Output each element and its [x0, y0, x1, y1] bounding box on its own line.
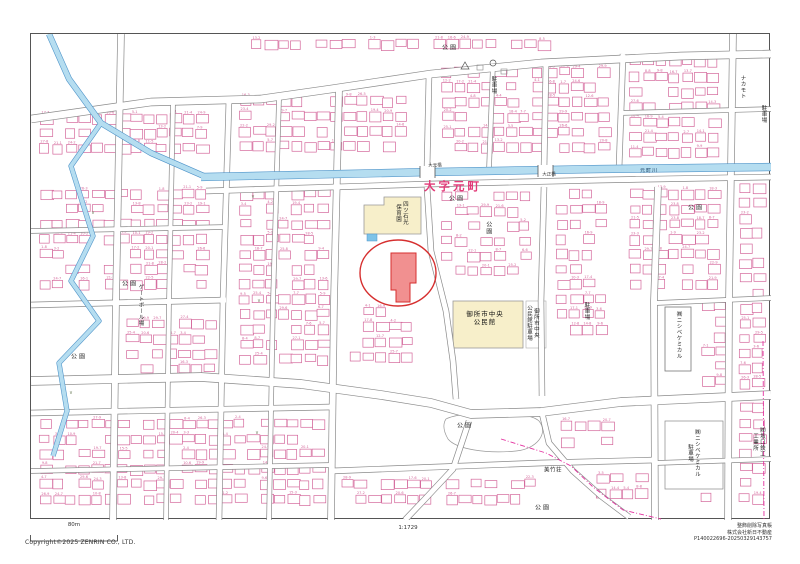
- svg-text:21-1: 21-1: [54, 141, 62, 145]
- svg-text:10-3: 10-3: [571, 276, 579, 280]
- svg-text:6-7: 6-7: [318, 305, 324, 309]
- svg-text:16-7: 16-7: [670, 70, 678, 74]
- svg-text:29-6: 29-6: [80, 475, 88, 479]
- svg-text:13-2: 13-2: [158, 124, 166, 128]
- svg-text:13-7: 13-7: [684, 69, 692, 73]
- svg-text:7-7: 7-7: [520, 110, 526, 114]
- svg-text:9-8: 9-8: [716, 373, 722, 377]
- svg-text:22-1: 22-1: [468, 248, 476, 252]
- scale-bar-label: 80m: [30, 522, 118, 528]
- svg-text:8-7: 8-7: [709, 216, 715, 220]
- svg-text:16-1: 16-1: [80, 276, 88, 280]
- svg-text:21-1: 21-1: [183, 185, 191, 189]
- svg-text:7-6: 7-6: [740, 361, 746, 365]
- svg-text:16-9: 16-9: [585, 231, 593, 235]
- svg-text:29-9: 29-9: [599, 64, 607, 68]
- svg-text:4-2: 4-2: [390, 318, 396, 322]
- svg-text:5-9: 5-9: [267, 230, 273, 234]
- svg-text:24-9: 24-9: [198, 110, 206, 114]
- svg-text:20-2: 20-2: [444, 108, 452, 112]
- svg-text:21-5: 21-5: [631, 215, 639, 219]
- svg-text:12-6: 12-6: [586, 94, 594, 98]
- svg-text:8-5: 8-5: [539, 37, 545, 41]
- svg-text:25-4: 25-4: [255, 352, 264, 356]
- svg-text:21-4: 21-4: [184, 111, 193, 115]
- svg-text:3-5: 3-5: [508, 124, 514, 128]
- svg-text:24-7: 24-7: [53, 276, 61, 280]
- svg-text:14-3: 14-3: [708, 100, 716, 104]
- svg-text:17-4: 17-4: [584, 275, 593, 279]
- svg-text:4-7: 4-7: [41, 475, 47, 479]
- svg-text:21-4: 21-4: [468, 80, 477, 84]
- svg-text:23-8: 23-8: [671, 216, 679, 220]
- svg-text:18-7: 18-7: [696, 216, 704, 220]
- svg-text:28-9: 28-9: [343, 476, 351, 480]
- svg-text:20-9: 20-9: [384, 109, 392, 113]
- svg-text:16-3: 16-3: [180, 360, 188, 364]
- credit-line: P140022696-20250329143757: [694, 536, 772, 543]
- svg-text:24-6: 24-6: [572, 79, 580, 83]
- svg-text:3-5: 3-5: [598, 471, 604, 475]
- print-credits: 整飾削除写真帳 株式会社新日不動産 P140022696-20250329143…: [694, 523, 772, 543]
- svg-text:23-4: 23-4: [240, 107, 249, 111]
- svg-text:3-2: 3-2: [54, 247, 60, 251]
- svg-text:29-7: 29-7: [644, 247, 652, 251]
- svg-text:29-6: 29-6: [279, 306, 287, 310]
- svg-text:1-7: 1-7: [560, 80, 566, 84]
- svg-text:9-9: 9-9: [697, 144, 703, 148]
- svg-text:14-6: 14-6: [396, 123, 404, 127]
- svg-text:7-7: 7-7: [293, 291, 299, 295]
- svg-text:18-9: 18-9: [597, 200, 605, 204]
- svg-text:21-9: 21-9: [709, 276, 717, 280]
- svg-text:18-4: 18-4: [509, 110, 518, 114]
- svg-text:5-1: 5-1: [132, 110, 138, 114]
- svg-text:21-7: 21-7: [93, 461, 101, 465]
- svg-text:19-4: 19-4: [754, 491, 763, 495]
- map-print-page: 13-21-321-816-624-98-517-716-65-17-121-4…: [0, 0, 800, 564]
- svg-text:5-4: 5-4: [658, 115, 664, 119]
- svg-text:17-1: 17-1: [570, 306, 578, 310]
- svg-text:25-2: 25-2: [508, 263, 516, 267]
- svg-text:16-6: 16-6: [448, 35, 456, 39]
- svg-text:20-7: 20-7: [603, 418, 611, 422]
- svg-text:15-5: 15-5: [120, 447, 128, 451]
- svg-text:21-8: 21-8: [146, 261, 154, 265]
- svg-text:25-4: 25-4: [127, 330, 136, 334]
- svg-text:9-8: 9-8: [657, 68, 663, 72]
- svg-text:21-4: 21-4: [645, 129, 654, 133]
- svg-text:20-1: 20-1: [482, 263, 490, 267]
- svg-text:22-9: 22-9: [710, 260, 718, 264]
- svg-text:1-8: 1-8: [41, 245, 47, 249]
- scale-ratio: 1:1729: [378, 525, 438, 531]
- svg-text:20-6: 20-6: [396, 491, 404, 495]
- svg-text:24-7: 24-7: [682, 245, 690, 249]
- svg-text:20-6: 20-6: [141, 331, 149, 335]
- svg-text:9-6: 9-6: [597, 321, 603, 325]
- svg-text:27-9: 27-9: [93, 415, 101, 419]
- map-canvas[interactable]: 13-21-321-816-624-98-517-716-65-17-121-4…: [30, 33, 770, 519]
- svg-text:7-1: 7-1: [703, 343, 709, 347]
- svg-text:29-7: 29-7: [293, 277, 301, 281]
- svg-text:3-3: 3-3: [183, 431, 189, 435]
- svg-text:21-6: 21-6: [496, 204, 504, 208]
- svg-text:20-2: 20-2: [456, 140, 464, 144]
- svg-text:27-1: 27-1: [293, 336, 301, 340]
- svg-text:26-3: 26-3: [741, 376, 749, 380]
- svg-text:27-2: 27-2: [357, 491, 365, 495]
- svg-text:3-6: 3-6: [753, 345, 759, 349]
- svg-text:9-4: 9-4: [318, 247, 324, 251]
- svg-text:17-2: 17-2: [131, 246, 139, 250]
- svg-text:2-4: 2-4: [183, 446, 189, 450]
- svg-text:27-4: 27-4: [181, 315, 190, 319]
- svg-text:20-1: 20-1: [301, 445, 309, 449]
- svg-text:4-1: 4-1: [365, 304, 371, 308]
- svg-text:5-9: 5-9: [197, 186, 203, 190]
- svg-text:21-8: 21-8: [435, 35, 443, 39]
- svg-text:22-3: 22-3: [526, 475, 534, 479]
- svg-text:18-7: 18-7: [255, 246, 263, 250]
- svg-text:8-8: 8-8: [645, 69, 651, 73]
- svg-text:20-1: 20-1: [145, 246, 153, 250]
- svg-text:8-4: 8-4: [242, 337, 248, 341]
- svg-text:4-1: 4-1: [534, 78, 540, 82]
- svg-text:24-9: 24-9: [461, 35, 469, 39]
- svg-text:17-6: 17-6: [409, 476, 417, 480]
- svg-text:15-3: 15-3: [289, 490, 297, 494]
- svg-text:4-2: 4-2: [267, 200, 273, 204]
- svg-text:9-8: 9-8: [346, 93, 352, 97]
- svg-text:23-2: 23-2: [184, 202, 192, 206]
- svg-text:3-4: 3-4: [180, 331, 186, 335]
- svg-text:22-2: 22-2: [240, 123, 248, 127]
- svg-text:10-8: 10-8: [93, 492, 101, 496]
- svg-text:5-7: 5-7: [267, 138, 273, 142]
- svg-text:7-7: 7-7: [585, 291, 591, 295]
- svg-text:8-7: 8-7: [496, 247, 502, 251]
- svg-text:20-8: 20-8: [600, 139, 608, 143]
- svg-text:25-8: 25-8: [280, 247, 288, 251]
- svg-text:8-2: 8-2: [456, 234, 462, 238]
- svg-text:19-7: 19-7: [94, 446, 102, 450]
- svg-text:9-8: 9-8: [42, 461, 48, 465]
- svg-text:8-8: 8-8: [636, 485, 642, 489]
- svg-text:8-7: 8-7: [254, 336, 260, 340]
- svg-text:5-2: 5-2: [520, 218, 526, 222]
- svg-text:20-1: 20-1: [422, 477, 430, 481]
- svg-text:13-2: 13-2: [252, 36, 260, 40]
- svg-text:7-9: 7-9: [197, 125, 203, 129]
- svg-text:27-6: 27-6: [631, 99, 639, 103]
- svg-text:20-4: 20-4: [171, 431, 180, 435]
- svg-text:4-8: 4-8: [470, 94, 476, 98]
- svg-text:19-9: 19-9: [141, 316, 149, 320]
- svg-text:26-5: 26-5: [358, 92, 366, 96]
- svg-text:17-2: 17-2: [456, 79, 464, 83]
- svg-text:15-9: 15-9: [584, 306, 592, 310]
- svg-text:3-6: 3-6: [596, 307, 602, 311]
- svg-text:19-1: 19-1: [198, 201, 206, 205]
- svg-text:18-1: 18-1: [456, 188, 464, 192]
- svg-text:26-7: 26-7: [448, 491, 456, 495]
- svg-text:16-7: 16-7: [562, 417, 570, 421]
- svg-text:17-8: 17-8: [364, 318, 372, 322]
- svg-text:29-9: 29-9: [559, 110, 567, 114]
- svg-text:19-4: 19-4: [292, 201, 301, 205]
- svg-text:13-2: 13-2: [495, 138, 503, 142]
- svg-text:14-8: 14-8: [583, 322, 591, 326]
- svg-text:2-4: 2-4: [235, 415, 241, 419]
- svg-text:26-9: 26-9: [41, 492, 49, 496]
- svg-text:11-5: 11-5: [146, 139, 154, 143]
- copyright-text: Copyright©2025 ZENRIN CO., LTD.: [25, 539, 136, 546]
- svg-text:3-4: 3-4: [241, 202, 247, 206]
- svg-text:23-3: 23-3: [631, 232, 639, 236]
- svg-text:9-6: 9-6: [261, 476, 267, 480]
- svg-text:10-6: 10-6: [183, 461, 191, 465]
- svg-text:29-9: 29-9: [481, 203, 489, 207]
- svg-text:23-8: 23-8: [671, 202, 679, 206]
- svg-text:1-2: 1-2: [222, 491, 228, 495]
- basemap-graphics: 13-21-321-816-624-98-517-716-65-17-121-4…: [31, 34, 771, 520]
- svg-text:13-1: 13-1: [457, 203, 465, 207]
- svg-text:29-7: 29-7: [153, 316, 161, 320]
- svg-text:13-8: 13-8: [118, 476, 126, 480]
- svg-text:10-9: 10-9: [67, 432, 75, 436]
- svg-text:8-4: 8-4: [184, 417, 190, 421]
- svg-text:26-6: 26-6: [559, 123, 567, 127]
- svg-text:14-4: 14-4: [611, 486, 620, 490]
- svg-text:5-7: 5-7: [319, 321, 325, 325]
- svg-text:13-6: 13-6: [320, 276, 328, 280]
- svg-text:12-2: 12-2: [443, 79, 451, 83]
- svg-text:5-9: 5-9: [320, 291, 326, 295]
- svg-text:23-2: 23-2: [697, 231, 705, 235]
- svg-text:7-6: 7-6: [306, 321, 312, 325]
- svg-text:6-6: 6-6: [522, 248, 528, 252]
- svg-text:25-7: 25-7: [390, 349, 398, 353]
- svg-text:14-1: 14-1: [697, 129, 705, 133]
- svg-text:11-4: 11-4: [631, 145, 640, 149]
- svg-text:24-3: 24-3: [94, 477, 102, 481]
- svg-text:12-7: 12-7: [376, 334, 384, 338]
- svg-text:1-8: 1-8: [159, 187, 165, 191]
- svg-text:10-1: 10-1: [132, 231, 140, 235]
- svg-text:5-4: 5-4: [623, 486, 629, 490]
- svg-text:2-7: 2-7: [683, 130, 689, 134]
- svg-text:24-2: 24-2: [68, 140, 76, 144]
- svg-text:24-7: 24-7: [279, 216, 287, 220]
- svg-text:12-8: 12-8: [571, 321, 579, 325]
- svg-text:26-3: 26-3: [198, 416, 206, 420]
- svg-text:28-5: 28-5: [753, 375, 761, 379]
- svg-text:29-5: 29-5: [755, 330, 763, 334]
- svg-text:26-6: 26-6: [197, 246, 205, 250]
- svg-text:28-2: 28-2: [158, 261, 166, 265]
- svg-text:25-1: 25-1: [444, 125, 452, 129]
- svg-text:24-7: 24-7: [55, 492, 63, 496]
- svg-text:23-2: 23-2: [741, 211, 749, 215]
- svg-text:25-1: 25-1: [741, 316, 749, 320]
- svg-text:1-9: 1-9: [670, 231, 676, 235]
- svg-text:29-2: 29-2: [267, 123, 275, 127]
- svg-text:13-8: 13-8: [133, 201, 141, 205]
- svg-text:25-4: 25-4: [253, 291, 262, 295]
- svg-text:19-9: 19-9: [196, 461, 204, 465]
- svg-text:9-5: 9-5: [240, 292, 246, 296]
- svg-text:27-8: 27-8: [40, 140, 48, 144]
- svg-text:4-4: 4-4: [496, 93, 502, 97]
- svg-text:22-5: 22-5: [146, 276, 154, 280]
- svg-text:1-8: 1-8: [682, 186, 688, 190]
- svg-text:19-4: 19-4: [371, 108, 380, 112]
- svg-text:28-5: 28-5: [305, 232, 313, 236]
- svg-text:18-3: 18-3: [709, 187, 717, 191]
- svg-text:1-3: 1-3: [370, 35, 376, 39]
